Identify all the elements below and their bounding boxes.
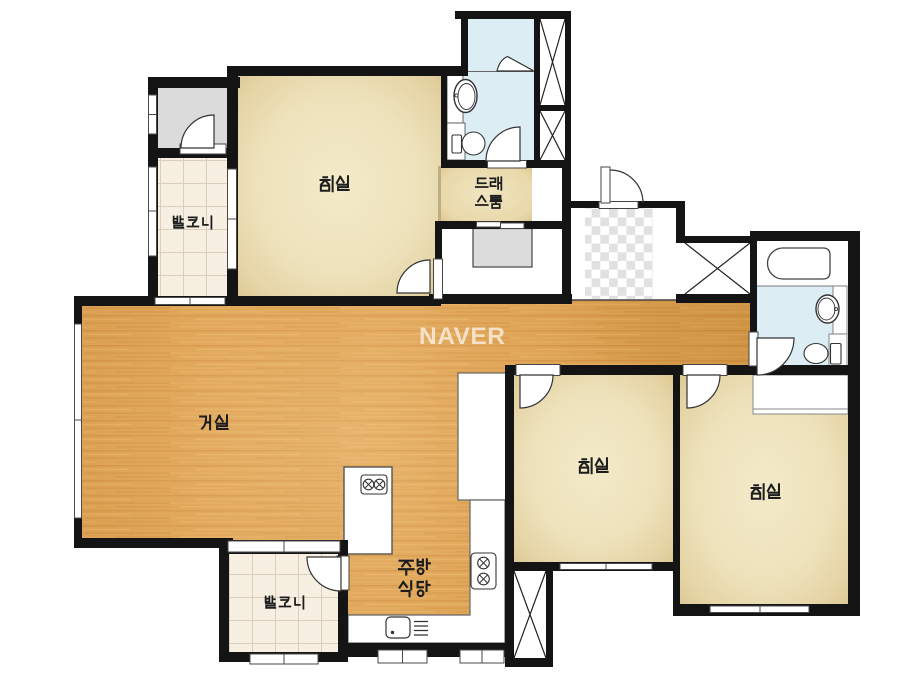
svg-text:NAVER: NAVER bbox=[419, 323, 505, 350]
